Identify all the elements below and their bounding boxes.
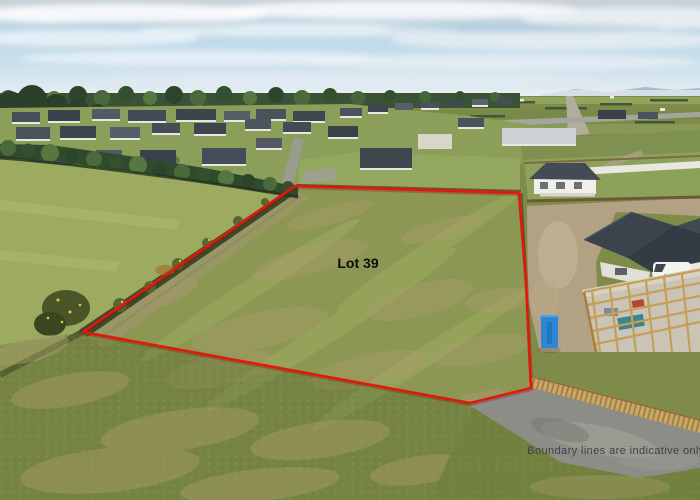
house-roof <box>245 119 271 129</box>
house-roof <box>418 134 452 149</box>
house-roof <box>360 148 412 168</box>
house-roof <box>152 123 180 133</box>
house-roof <box>497 98 512 104</box>
house-roof <box>283 122 311 132</box>
house-roof <box>447 100 463 106</box>
house-roof <box>328 126 358 137</box>
house-roof <box>256 138 282 148</box>
house-roof <box>194 123 226 134</box>
house-roof <box>12 112 40 122</box>
house-roof <box>472 99 488 105</box>
sky <box>0 0 700 98</box>
house-roof <box>340 108 362 116</box>
house-roof <box>638 112 658 119</box>
house-roof <box>293 111 325 121</box>
house-roof <box>421 102 439 108</box>
house-roof <box>395 103 413 110</box>
house-roof <box>224 111 250 120</box>
house-roof <box>128 110 166 121</box>
house-roof <box>202 148 246 164</box>
house-roof <box>110 127 140 138</box>
house-roof <box>256 109 286 119</box>
house-roof <box>368 105 388 112</box>
disclaimer-label: Boundary lines are indicative only <box>527 445 700 457</box>
house-roof <box>176 109 216 120</box>
house-roof <box>60 126 96 138</box>
house-roof <box>16 127 50 139</box>
neighbor-path <box>540 193 595 197</box>
house-roof <box>502 128 576 144</box>
house-roof <box>458 118 484 127</box>
lot-label: Lot 39 <box>337 255 378 271</box>
house-roof <box>48 110 80 121</box>
house-roof <box>92 109 120 119</box>
aerial-photo: Lot 39 Boundary lines are indicative onl… <box>0 0 700 500</box>
house-roof <box>598 110 626 119</box>
